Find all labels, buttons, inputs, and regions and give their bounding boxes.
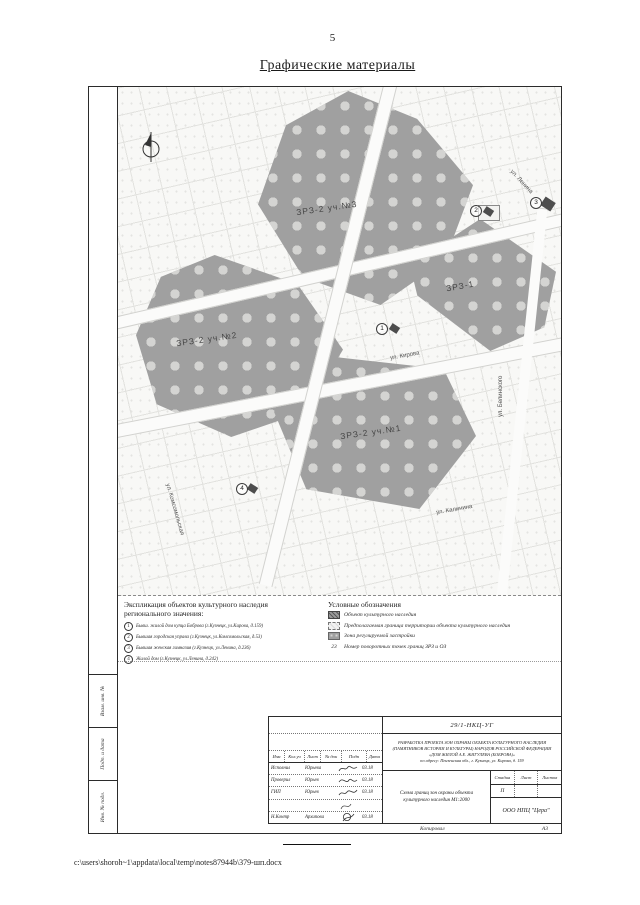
street-label-komsomolskaya: ул. Комсомольская (164, 483, 184, 536)
legend-swatch-object (328, 611, 340, 619)
listov-label: Листов (538, 771, 561, 784)
stamp-region: Изм Кол.уч Лист № док Подп Дата Исполнил… (118, 662, 561, 833)
item-number-badge: 2 (124, 633, 133, 642)
list-label: Лист (515, 771, 539, 784)
sheet-title-line: культурного наследия М1:2000 (403, 797, 469, 805)
stamp-doc-number: 29/1-НКЦ-УГ (383, 717, 561, 734)
stamp-sheet-title: Схема границ зон охраны объекта культурн… (383, 771, 491, 823)
page-title: Графические материалы (0, 58, 640, 74)
row-role: Исполнил (269, 766, 305, 771)
title-block: Изм Кол.уч Лист № док Подп Дата Исполнил… (268, 716, 562, 824)
signature-icon (338, 801, 362, 810)
col-list: Лист (305, 751, 321, 762)
map-area: ЗРЗ-2 уч.№3 ЗРЗ-1 ЗРЗ-2 уч.№2 ЗРЗ-2 уч.№… (118, 87, 561, 596)
col-koluch: Кол.уч (285, 751, 305, 762)
legend-item: 23 Номер поворотных точек границ ЗРЗ и О… (328, 643, 561, 651)
legend-item: Предполагаемая граница территории объект… (328, 622, 561, 630)
row-role: ГИП (269, 790, 305, 795)
signature-icon (338, 776, 362, 785)
legend-item: Зона регулируемой застройки (328, 632, 561, 640)
listov-value (538, 785, 561, 797)
sheet-side-strip: Взам. инв. № Подп. и дата Инв. № подл. (89, 87, 118, 833)
footnote-divider (283, 844, 351, 845)
sheet-title-line: Схема границ зон охраны объекта (400, 790, 473, 798)
row-date: 03.18 (362, 766, 382, 771)
drawing-sheet: Взам. инв. № Подп. и дата Инв. № подл. (88, 86, 562, 834)
legend-item-text: Номер поворотных точек границ ЗРЗ и ОЗ (344, 644, 446, 650)
row-name: Юрьева (305, 766, 338, 771)
row-role: Проверил (269, 778, 305, 783)
legend-swatch-boundary (328, 622, 340, 630)
row-role: Н.Контр (269, 815, 305, 820)
col-izm: Изм (269, 751, 285, 762)
legend-item-text: Зона регулируемой застройки (344, 633, 415, 639)
col-dok: № док (321, 751, 342, 762)
strip-cell-inv: Инв. № подл. (89, 780, 117, 833)
item-text: Жилой дом (г.Кузнецк, ул.Ленина, д.242) (136, 657, 218, 662)
legend-item-text: Объект культурного наследия (344, 612, 416, 618)
strip-cell-vzam: Взам. инв. № (89, 674, 117, 727)
stamp-row: Исполнил Юрьева 03.18 (269, 763, 382, 775)
marker-circle-1: 1 (376, 323, 388, 335)
street-label-kalinina: ул. Калинина (436, 504, 473, 516)
street-label-lenina: ул. Ленина (509, 169, 534, 195)
stage-value: П (491, 785, 515, 797)
row-name: Юрьев (305, 790, 338, 795)
project-line: по адресу: Пензенская обл., г. Кузнецк, … (420, 758, 523, 764)
row-date: 03.18 (362, 778, 382, 783)
sheet-main: ЗРЗ-2 уч.№3 ЗРЗ-1 ЗРЗ-2 уч.№2 ЗРЗ-2 уч.№… (118, 87, 561, 833)
stage-header: Стадия Лист Листов (491, 771, 561, 785)
legend: Условные обозначения Объект культурного … (322, 600, 561, 661)
col-podp: Подп (342, 751, 367, 762)
file-path: c:\users\shoroh~1\appdata\local\temp\not… (74, 858, 282, 867)
explication-items: 1 Бывш. жилой дом купца Боброва (г.Кузне… (124, 622, 322, 664)
stage-values: П (491, 785, 561, 798)
explication-item: 3 Бывшая женская гимназия (г.Кузнецк, ул… (124, 644, 322, 653)
format-label: А3 (542, 826, 548, 832)
item-text: Бывшая городская управа (г.Кузнецк, ул.К… (136, 635, 262, 640)
signature-icon (338, 812, 362, 822)
street-label-kirova: ул. Кирова (390, 350, 420, 361)
col-data: Дата (367, 751, 382, 762)
below-stamp-row: Копировал А3 (270, 824, 562, 833)
stamp-row: ГИП Юрьев 03.18 (269, 787, 382, 799)
heritage-square-1 (389, 323, 400, 334)
document-page: 5 Графические материалы Взам. инв. № Под… (0, 0, 640, 905)
row-date: 03.18 (362, 815, 382, 820)
stamp-col-header: Изм Кол.уч Лист № док Подп Дата (269, 751, 382, 763)
marker-circle-3: 3 (530, 197, 542, 209)
legend-row: Экспликация объектов культурного наследи… (118, 596, 561, 662)
strip-spacer (89, 87, 117, 674)
stage-company-block: Стадия Лист Листов П ООО НПЦ "Цера" (491, 771, 561, 823)
signature-icon (338, 764, 362, 773)
legend-item: Объект культурного наследия (328, 611, 561, 619)
explication-title: Экспликация объектов культурного наследи… (124, 600, 294, 619)
signature-icon (338, 788, 362, 797)
row-name: Юрьев (305, 778, 338, 783)
stamp-row-empty (269, 800, 382, 812)
stamp-row: Н.Контр Архипова 03.18 (269, 812, 382, 823)
stamp-left-block: Изм Кол.уч Лист № док Подп Дата Исполнил… (269, 717, 383, 823)
strip-label: Инв. № подл. (100, 792, 106, 822)
strip-label: Взам. инв. № (100, 686, 106, 716)
north-arrow-icon (140, 131, 162, 163)
marker-circle-2: 2 (470, 205, 482, 217)
stage-label: Стадия (491, 771, 515, 784)
copied-label: Копировал (420, 826, 445, 832)
explication: Экспликация объектов культурного наследи… (118, 600, 322, 661)
item-text: Бывшая женская гимназия (г.Кузнецк, ул.Л… (136, 646, 251, 651)
change-row (269, 717, 382, 734)
stamp-row3: Схема границ зон охраны объекта культурн… (383, 771, 561, 823)
explication-item: 1 Бывш. жилой дом купца Боброва (г.Кузне… (124, 622, 322, 631)
stamp-right-block: 29/1-НКЦ-УГ РАЗРАБОТКА ПРОЕКТА ЗОН ОХРАН… (383, 717, 561, 823)
heritage-square-4 (247, 483, 258, 494)
legend-title: Условные обозначения (328, 600, 561, 609)
item-text: Бывш. жилой дом купца Боброва (г.Кузнецк… (136, 624, 263, 629)
marker-circle-4: 4 (236, 483, 248, 495)
item-number-badge: 1 (124, 622, 133, 631)
strip-cell-podp: Подп. и дата (89, 727, 117, 780)
legend-swatch-point-number: 23 (328, 643, 340, 651)
list-value (515, 785, 539, 797)
company-name: ООО НПЦ "Цера" (491, 798, 561, 823)
legend-swatch-zone (328, 632, 340, 640)
page-number: 5 (0, 32, 640, 44)
change-row (269, 734, 382, 751)
street-label-belinskogo: ул. Белинского (498, 376, 504, 417)
strip-label: Подп. и дата (100, 738, 106, 769)
item-number-badge: 3 (124, 644, 133, 653)
explication-item: 2 Бывшая городская управа (г.Кузнецк, ул… (124, 633, 322, 642)
row-name: Архипова (305, 815, 338, 820)
legend-item-text: Предполагаемая граница территории объект… (344, 623, 510, 629)
stamp-project-desc: РАЗРАБОТКА ПРОЕКТА ЗОН ОХРАНЫ ОБЪЕКТА КУ… (383, 734, 561, 771)
row-date: 03.18 (362, 790, 382, 795)
stamp-row: Проверил Юрьев 03.18 (269, 775, 382, 787)
